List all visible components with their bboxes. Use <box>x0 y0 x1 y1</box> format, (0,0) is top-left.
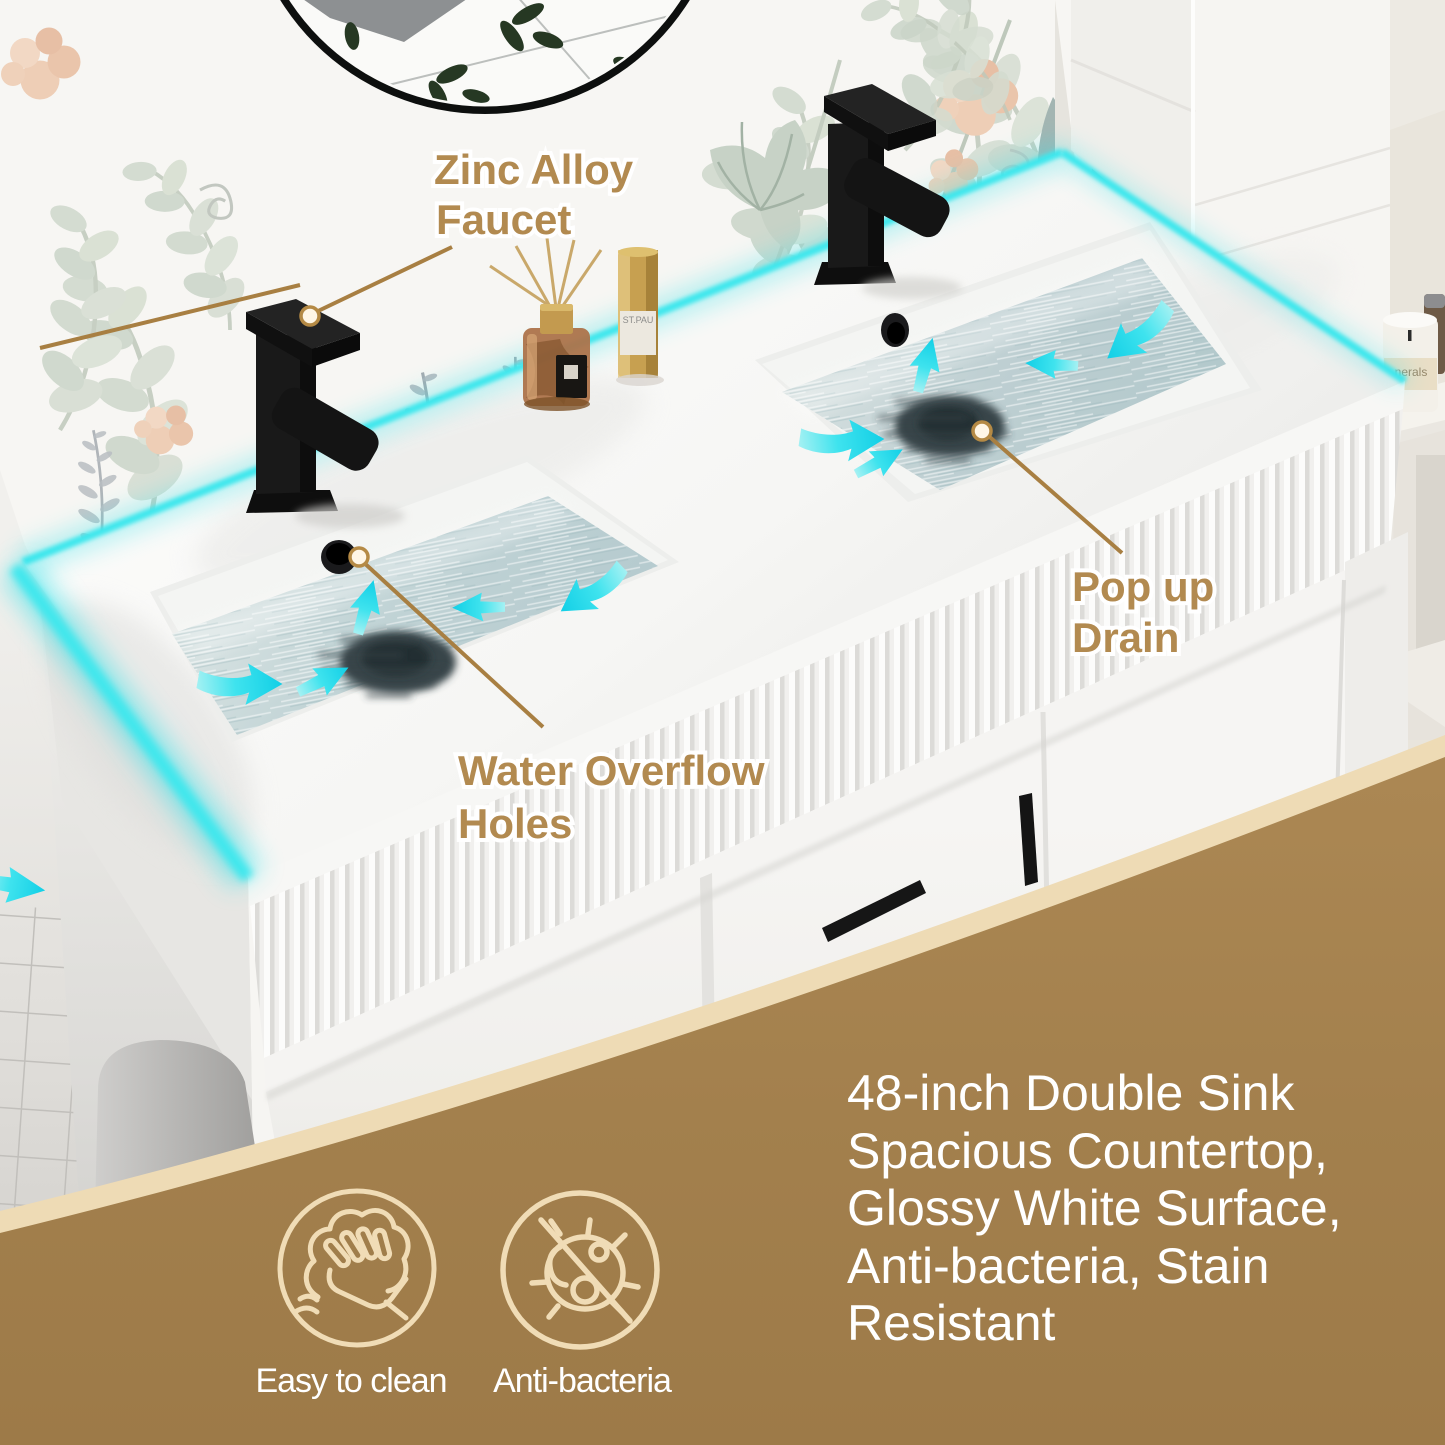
svg-text:Resistant: Resistant <box>847 1295 1056 1351</box>
svg-text:Water Overflow: Water Overflow <box>458 747 765 794</box>
svg-text:Holes: Holes <box>458 800 572 847</box>
svg-text:Anti-bacteria: Anti-bacteria <box>493 1362 672 1400</box>
svg-text:Drain: Drain <box>1072 614 1179 661</box>
svg-text:ST.PAU: ST.PAU <box>623 315 654 325</box>
svg-text:Spacious Countertop,: Spacious Countertop, <box>847 1123 1328 1179</box>
svg-text:Pop up: Pop up <box>1072 563 1214 610</box>
svg-text:Glossy White Surface,: Glossy White Surface, <box>847 1180 1342 1236</box>
svg-text:Anti-bacteria, Stain: Anti-bacteria, Stain <box>847 1238 1269 1294</box>
svg-text:Faucet: Faucet <box>436 196 571 243</box>
svg-text:48-inch Double Sink: 48-inch Double Sink <box>847 1065 1295 1121</box>
svg-text:Zinc Alloy: Zinc Alloy <box>434 146 634 193</box>
svg-text:Easy to clean: Easy to clean <box>255 1362 446 1400</box>
